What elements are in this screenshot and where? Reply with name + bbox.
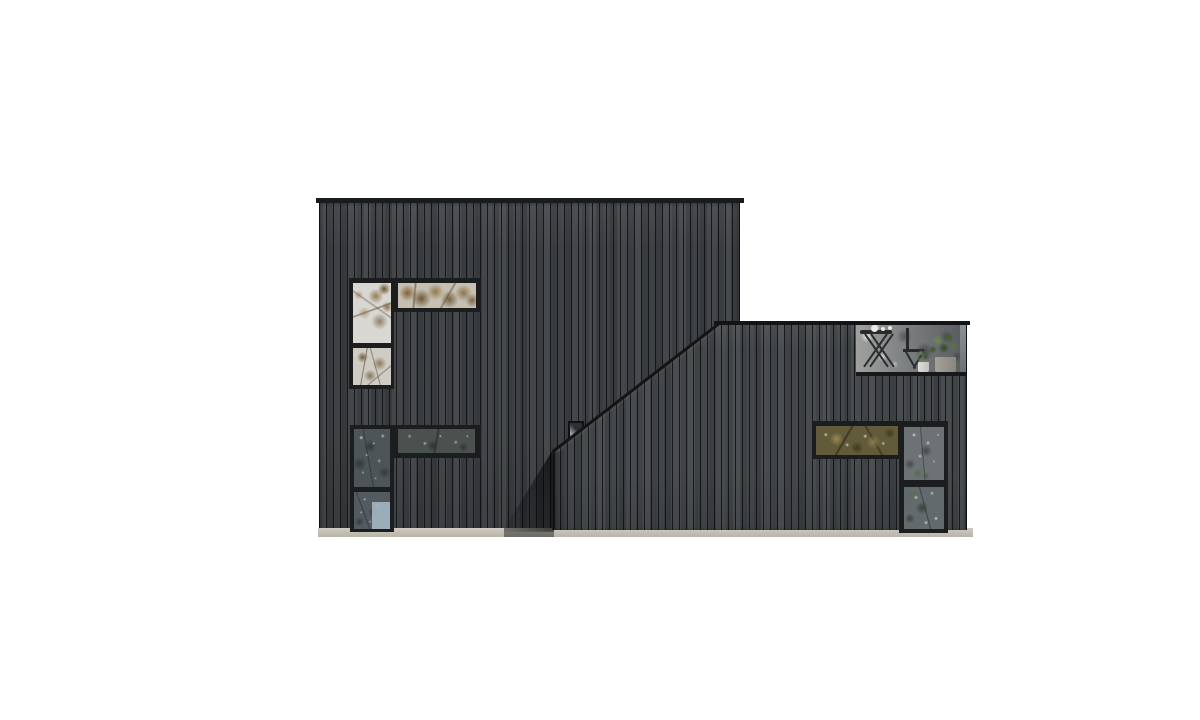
blue-sky-reflection-patch (372, 502, 390, 529)
wing-vertical-window-pane-bottom (904, 487, 944, 529)
wing-flat-parapet-cap (714, 321, 970, 325)
roof-terrace (856, 321, 966, 376)
cup (881, 327, 885, 331)
wing-corner-shade (553, 451, 565, 530)
kettle (871, 325, 878, 332)
upper-left-window-pane-bottom (353, 348, 391, 385)
main-block-roof-cap (316, 198, 744, 203)
wing-vertical-window-pane-top (904, 427, 944, 480)
lower-horizontal-window-pane (398, 429, 475, 453)
small-plant-white-pot (918, 362, 929, 372)
upper-horizontal-window-pane (398, 283, 476, 308)
upper-left-window-pane-top (353, 283, 391, 343)
terrace-right-jamb (960, 321, 966, 372)
architectural-rendering (0, 0, 1200, 720)
wing-horizontal-window-pane (816, 426, 898, 455)
large-plant-foliage (928, 330, 960, 360)
cup (888, 326, 892, 330)
large-plant-concrete-pot (935, 357, 956, 372)
lower-left-window-pane-bottom (354, 492, 390, 529)
lower-left-window-pane-top (354, 429, 390, 487)
chair-back (906, 328, 909, 351)
